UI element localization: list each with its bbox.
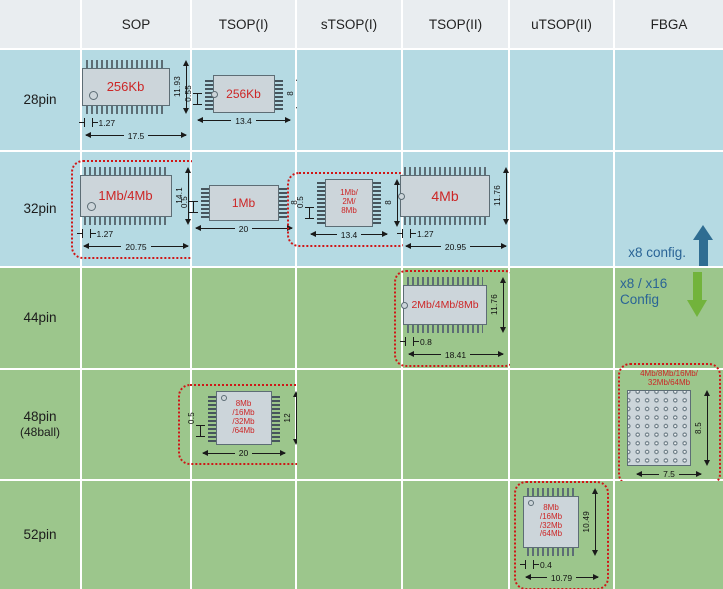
- pitch-tick-icon: [402, 229, 411, 238]
- arrow-up-icon: [693, 225, 713, 266]
- highlight-box: 0.5 8Mb /16Mb /32Mb /64: [178, 384, 310, 465]
- pin1-marker: [87, 202, 96, 211]
- col-header-sop: SOP: [82, 0, 190, 48]
- pitch-dimension: 0.5: [180, 185, 198, 221]
- pins-left: [201, 188, 209, 218]
- highlight-box: 4Mb/8Mb/16Mb/ 32Mb/64Mb 8.5 7.5: [618, 363, 721, 487]
- cell-52pin-stsop1: [297, 481, 401, 589]
- row-sublabel: (48ball): [20, 425, 60, 440]
- highlight-box: 0.5 1Mb/ 2M/ 8Mb: [287, 172, 411, 247]
- pin1-marker: [398, 193, 405, 200]
- cell-52pin-tsop1: [192, 481, 295, 589]
- col-header-tsop2: TSOP(II): [403, 0, 508, 48]
- package-grid: SOP TSOP(I) sTSOP(I) TSOP(II) uTSOP(II) …: [0, 0, 723, 589]
- cell-44pin-utsop2: [510, 268, 613, 368]
- pitch-dimension: 0.5: [187, 391, 205, 445]
- col-label: sTSOP(I): [321, 17, 377, 32]
- chip-tsop1-28: 0.55 256Kb 8: [184, 75, 304, 126]
- height-dimension: 11.76: [493, 167, 511, 225]
- row-label-32pin: 32pin: [0, 152, 80, 266]
- capacity-label: 4Mb/8Mb/16Mb/ 32Mb/64Mb: [640, 370, 698, 388]
- vertical-arrow: [591, 488, 600, 556]
- pitch-dimension: 0.4: [523, 560, 552, 570]
- pitch-dimension: 0.5: [296, 179, 314, 227]
- pins-left: [208, 394, 216, 442]
- cell-28pin-tsop2: [403, 50, 508, 150]
- pins-top: [407, 277, 483, 285]
- chip-tsop2-32: 4Mb 11.76 1.27 20.95: [400, 167, 511, 252]
- pin1-marker: [211, 91, 218, 98]
- row-label-48pin: 48pin (48ball): [0, 370, 80, 479]
- pitch-tick-icon: [189, 201, 198, 213]
- arrow-down-icon: [687, 272, 707, 317]
- pins-top: [527, 488, 575, 496]
- cell-48pin-sop: [82, 370, 190, 479]
- pins-top: [86, 60, 166, 68]
- capacity-label: 1Mb/ 2M/ 8Mb: [340, 189, 358, 216]
- pitch-dimension: 0.8: [403, 337, 432, 347]
- cell-44pin-sop: [82, 268, 190, 368]
- height-dimension: 8.5: [694, 390, 712, 466]
- cell-48pin-tsop1: 0.5 8Mb /16Mb /32Mb /64: [192, 370, 295, 479]
- pin1-marker: [528, 500, 534, 506]
- capacity-label: 1Mb: [232, 196, 255, 210]
- capacity-label: 1Mb/4Mb: [98, 188, 152, 203]
- chip-stsop1-32: 0.5 1Mb/ 2M/ 8Mb: [296, 179, 402, 240]
- cell-48pin-tsop2: [403, 370, 508, 479]
- width-dimension: 10.79: [526, 573, 598, 583]
- pins-right: [373, 182, 381, 224]
- cell-44pin-stsop1: [297, 268, 401, 368]
- ball-grid: [627, 390, 691, 466]
- pitch-dimension: 0.55: [184, 75, 202, 113]
- cell-28pin-utsop2: [510, 50, 613, 150]
- capacity-label: 8Mb /16Mb /32Mb /64Mb: [232, 400, 254, 436]
- width-dimension: 13.4: [198, 116, 290, 126]
- height-dimension: 10.49: [582, 488, 600, 556]
- width-dimension: 20: [196, 224, 292, 234]
- package-lineup-diagram: SOP TSOP(I) sTSOP(I) TSOP(II) uTSOP(II) …: [0, 0, 723, 589]
- cell-52pin-tsop2: [403, 481, 508, 589]
- row-label-52pin: 52pin: [0, 481, 80, 589]
- width-dimension: 13.4: [311, 230, 387, 240]
- pin1-marker: [89, 91, 98, 100]
- highlight-box: 2Mb/4Mb/8Mb 11.76 0.8: [394, 270, 517, 367]
- capacity-label: 2Mb/4Mb/8Mb: [411, 299, 478, 311]
- row-label-44pin: 44pin: [0, 268, 80, 368]
- pins-left: [317, 182, 325, 224]
- cell-44pin-tsop2: 2Mb/4Mb/8Mb 11.76 0.8: [403, 268, 508, 368]
- pins-bottom: [404, 217, 486, 225]
- pitch-tick-icon: [525, 560, 534, 569]
- pins-bottom: [86, 106, 166, 114]
- cell-28pin-stsop1: [297, 50, 401, 150]
- chip-tsop2-44: 2Mb/4Mb/8Mb 11.76 0.8: [403, 277, 508, 360]
- col-label: SOP: [122, 17, 151, 32]
- cell-52pin-sop: [82, 481, 190, 589]
- capacity-label: 256Kb: [107, 79, 145, 94]
- chip-utsop2-52: 8Mb /16Mb /32Mb /64Mb 10.49: [523, 488, 600, 583]
- pitch-dimension: 1.27: [400, 229, 434, 239]
- chip-sop-28: 256Kb 11.93 1.27 17.5: [82, 60, 191, 141]
- pitch-tick-icon: [193, 93, 202, 105]
- col-label: FBGA: [651, 17, 688, 32]
- pins-top: [84, 167, 168, 175]
- pitch-tick-icon: [82, 229, 91, 238]
- pins-top: [404, 167, 486, 175]
- chip-sop-32: 1Mb/4Mb 14.1 1.27: [80, 167, 193, 252]
- x8-config-label: x8 config.: [598, 245, 686, 261]
- pitch-tick-icon: [405, 337, 414, 346]
- cell-48pin-utsop2: [510, 370, 613, 479]
- width-dimension: 17.5: [86, 131, 186, 141]
- pins-right: [279, 188, 287, 218]
- cell-28pin-fbga: [615, 50, 723, 150]
- pins-right: [275, 78, 283, 110]
- vertical-arrow: [499, 277, 508, 333]
- cell-44pin-tsop1: [192, 268, 295, 368]
- width-dimension: 20.75: [84, 242, 188, 252]
- header-corner: [0, 0, 80, 48]
- capacity-label: 256Kb: [226, 87, 261, 101]
- capacity-label: 4Mb: [431, 188, 458, 204]
- pitch-dimension: 1.27: [82, 118, 116, 128]
- pin1-marker: [401, 302, 408, 309]
- pin1-marker: [221, 395, 227, 401]
- col-header-fbga: FBGA: [615, 0, 723, 48]
- col-label: TSOP(II): [429, 17, 482, 32]
- width-dimension: 7.5: [637, 469, 701, 479]
- width-dimension: 20.95: [406, 242, 506, 252]
- pins-bottom: [527, 548, 575, 556]
- capacity-label: 8Mb /16Mb /32Mb /64Mb: [540, 504, 562, 540]
- pitch-tick-icon: [305, 207, 314, 219]
- cell-48pin-stsop1: [297, 370, 401, 479]
- row-label-28pin: 28pin: [0, 50, 80, 150]
- cell-48pin-fbga: 4Mb/8Mb/16Mb/ 32Mb/64Mb 8.5 7.5: [615, 370, 723, 479]
- col-label: uTSOP(II): [531, 17, 592, 32]
- width-dimension: 18.41: [409, 350, 503, 360]
- cell-52pin-fbga: [615, 481, 723, 589]
- x8-x16-config-label: x8 / x16 Config: [620, 276, 667, 308]
- vertical-arrow: [703, 390, 712, 466]
- pins-bottom: [84, 217, 168, 225]
- cell-28pin-sop: 256Kb 11.93 1.27 17.5: [82, 50, 190, 150]
- chip-tsop1-48: 0.5 8Mb /16Mb /32Mb /64: [187, 391, 301, 458]
- pitch-tick-icon: [84, 118, 93, 127]
- pitch-dimension: 1.27: [80, 229, 114, 239]
- col-header-stsop1: sTSOP(I): [297, 0, 401, 48]
- width-dimension: 20: [203, 448, 285, 458]
- height-dimension: 11.76: [490, 277, 508, 333]
- cell-32pin-stsop1: 0.5 1Mb/ 2M/ 8Mb: [297, 152, 401, 266]
- col-header-utsop2: uTSOP(II): [510, 0, 613, 48]
- pitch-tick-icon: [196, 425, 205, 437]
- cell-32pin-tsop1: 0.5 1Mb 8: [192, 152, 295, 266]
- cell-32pin-sop: 1Mb/4Mb 14.1 1.27: [82, 152, 190, 266]
- pins-bottom: [407, 325, 483, 333]
- col-header-tsop1: TSOP(I): [192, 0, 295, 48]
- col-label: TSOP(I): [219, 17, 269, 32]
- cell-52pin-utsop2: 8Mb /16Mb /32Mb /64Mb 10.49: [510, 481, 613, 589]
- cell-32pin-tsop2: 4Mb 11.76 1.27 20.95: [403, 152, 508, 266]
- chip-fbga-48: 4Mb/8Mb/16Mb/ 32Mb/64Mb 8.5 7.5: [627, 370, 712, 480]
- highlight-box: 8Mb /16Mb /32Mb /64Mb 10.49: [514, 481, 609, 589]
- cell-28pin-tsop1: 0.55 256Kb 8: [192, 50, 295, 150]
- pins-right: [272, 394, 280, 442]
